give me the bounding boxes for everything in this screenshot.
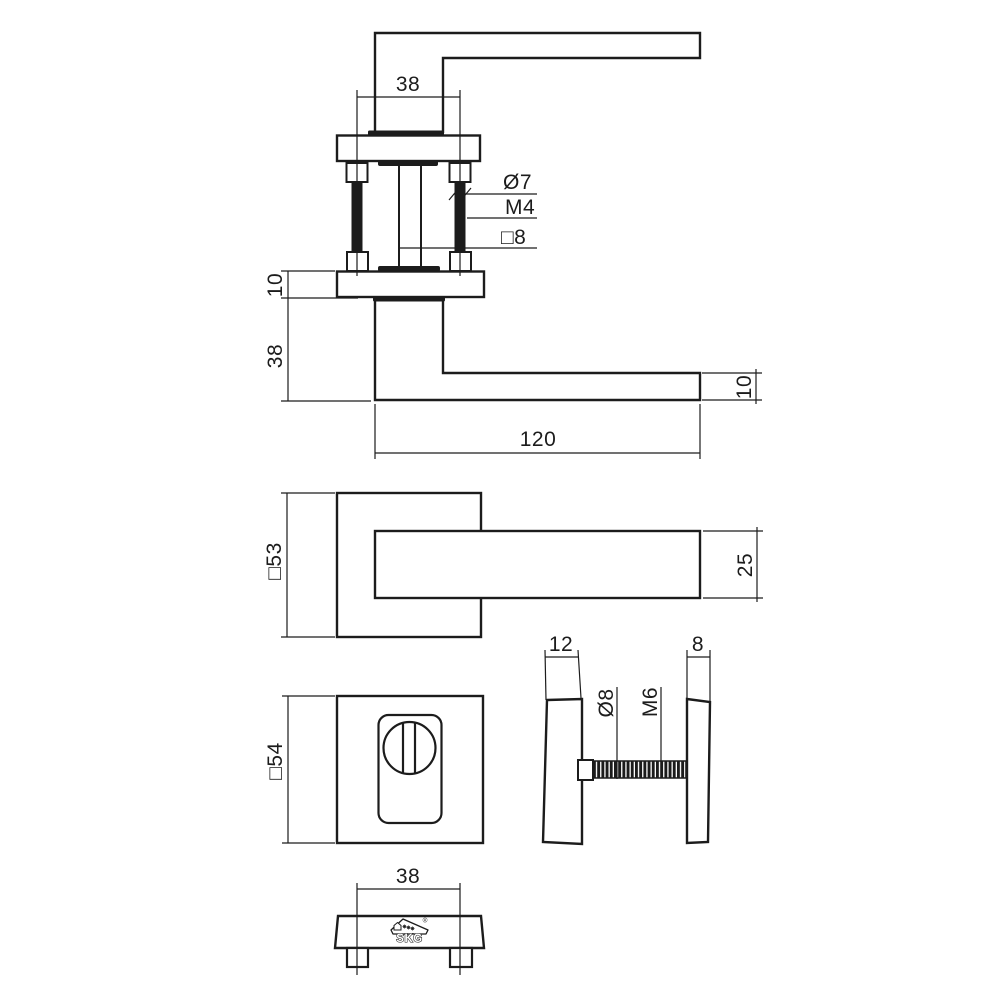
bolt-boss — [578, 760, 593, 780]
security-rosette-plate — [337, 696, 483, 843]
lower-rosette-section — [337, 272, 484, 298]
upper-rosette-bearing — [378, 161, 438, 167]
skg-registered-mark: ® — [423, 917, 428, 925]
bolt-threaded-shaft — [593, 761, 686, 778]
label-bolt-diameter: Ø8 — [595, 688, 618, 717]
mounting-foot-right — [450, 948, 472, 967]
drawing-svg: 38 Ø7 M4 □8 10 38 10 120 — [0, 0, 1000, 1000]
dim-text-inner-thickness: 8 — [692, 633, 704, 656]
dim-text-lever-length: 120 — [520, 428, 557, 451]
dim-text-security-square: □54 — [264, 742, 287, 780]
view-handle-section: 38 Ø7 M4 □8 10 38 10 120 — [264, 33, 762, 459]
dim-text-lever-thickness: 10 — [733, 375, 756, 399]
skg-logo-text: SKG — [396, 933, 422, 945]
lever-top-view-outline — [375, 33, 700, 133]
lever-bar-front — [375, 531, 700, 598]
lever-front-view-outline — [375, 301, 700, 400]
label-spindle-square: □8 — [501, 226, 526, 249]
technical-drawing-door-handle: 38 Ø7 M4 □8 10 38 10 120 — [0, 0, 1000, 1000]
label-bolt-thread: M6 — [639, 687, 662, 717]
dim-text-rosette-square: □53 — [263, 542, 286, 580]
label-screw-thread: M4 — [505, 196, 535, 219]
view-handle-front: □53 25 — [263, 493, 763, 637]
dim-text-handle-drop: 38 — [264, 344, 287, 368]
neck-bearing-strip-bottom — [373, 297, 445, 302]
dim-text-rosette-thickness: 10 — [264, 273, 287, 297]
view-security-rosette-side: 12 8 Ø8 M6 — [543, 633, 710, 844]
dim-text-outer-thickness: 12 — [549, 633, 573, 656]
dim-text-lever-section: 25 — [734, 553, 757, 577]
extension-line — [578, 650, 581, 698]
dim-text-hole-spacing: 38 — [396, 865, 420, 888]
label-screw-diameter: Ø7 — [503, 171, 532, 194]
dim-text-screw-spacing: 38 — [396, 73, 420, 96]
inner-rosette-side — [687, 699, 710, 843]
upper-rosette-section — [337, 136, 480, 162]
view-rosette-bottom: ® SKG 38 — [335, 865, 484, 975]
outer-rosette-side — [543, 699, 582, 844]
view-security-rosette-front: □54 — [264, 696, 483, 843]
